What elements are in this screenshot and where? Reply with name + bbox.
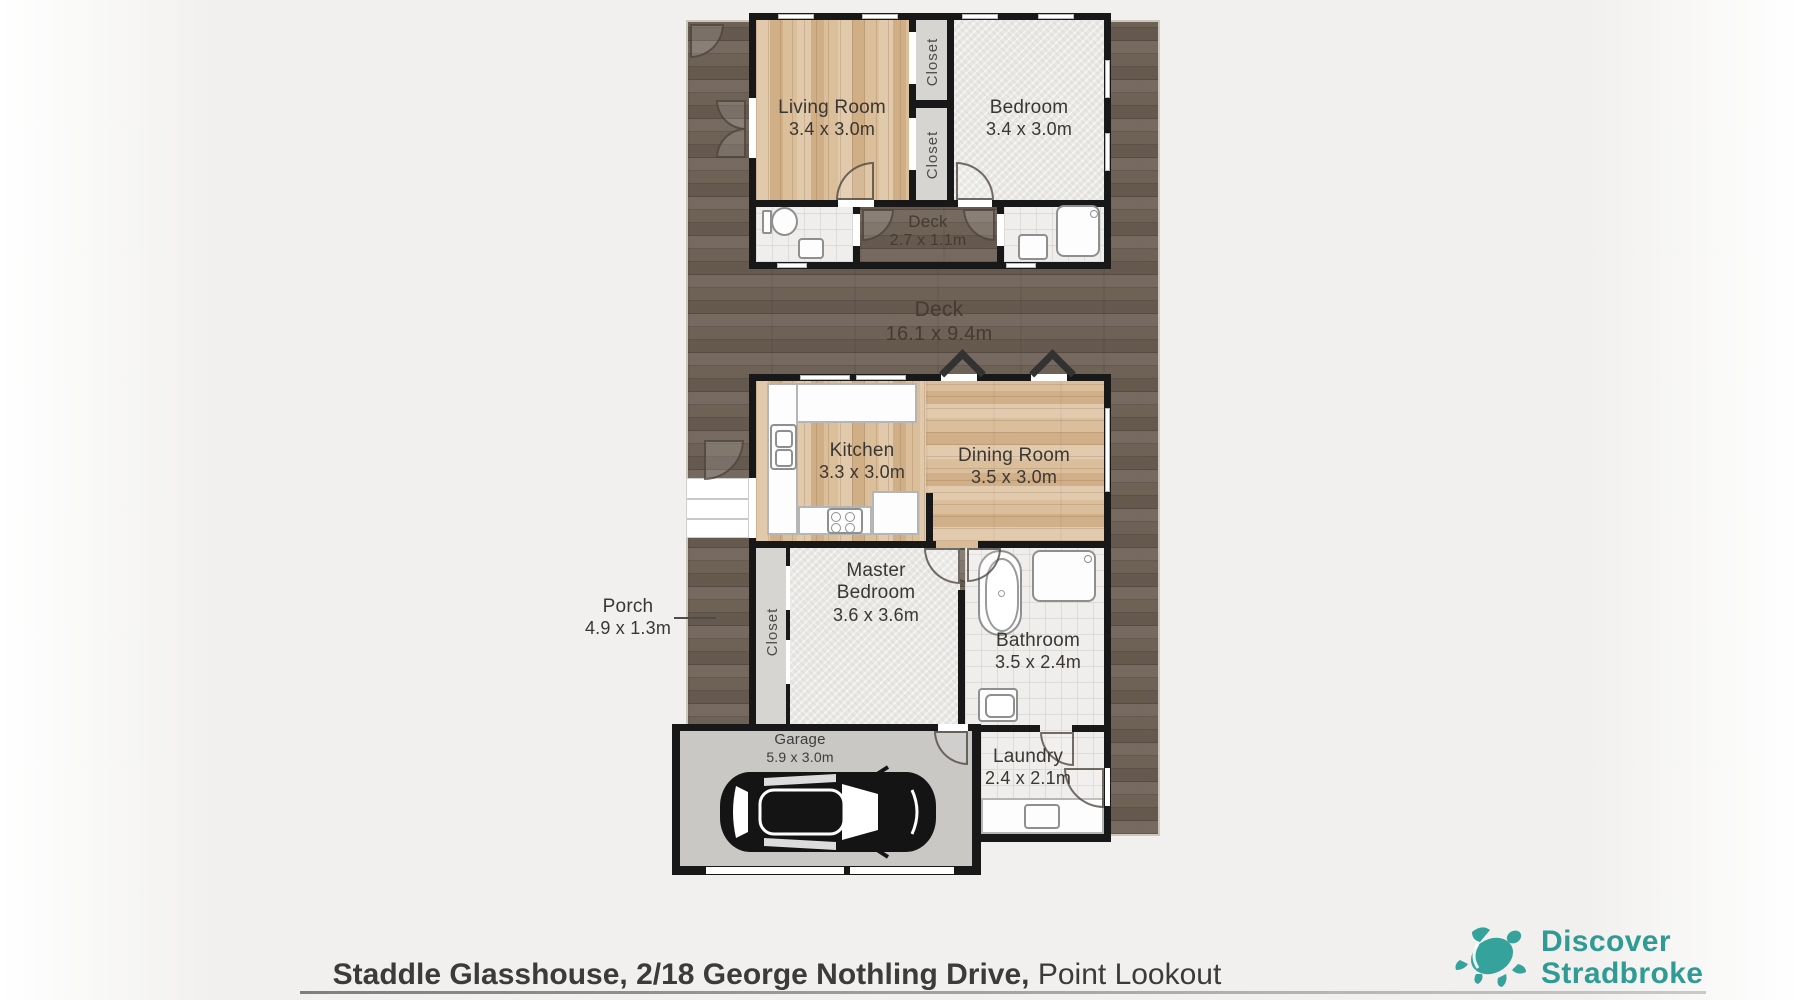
shower-drain: [1090, 210, 1098, 218]
master-dims: 3.6 x 3.6m: [833, 605, 919, 626]
window: [1038, 14, 1074, 19]
deck-small-name: Deck: [890, 212, 967, 232]
garage-label: Garage 5.9 x 3.0m: [766, 731, 833, 765]
closet-door-gap: [786, 566, 790, 610]
toilet-room-sink: [798, 238, 824, 259]
deck-main-name: Deck: [886, 298, 993, 323]
window: [777, 263, 807, 268]
living-room-name: Living Room: [778, 97, 886, 119]
deck-small-dims: 2.7 x 1.1m: [890, 232, 967, 251]
address-caption: Staddle Glasshouse, 2/18 George Nothling…: [327, 958, 1227, 992]
porch-label: Porch 4.9 x 1.3m: [585, 596, 671, 640]
wall: [756, 200, 1104, 207]
wall: [749, 548, 756, 731]
kitchen-name: Kitchen: [819, 440, 905, 462]
burner: [831, 512, 841, 522]
wall: [672, 724, 680, 875]
kitchen-sink-basin: [775, 449, 793, 467]
dining-name: Dining Room: [958, 445, 1070, 467]
bedroom-name: Bedroom: [986, 97, 1072, 119]
garage-door-gap: [938, 724, 968, 731]
wall: [958, 590, 965, 724]
laundry-dims: 2.4 x 2.1m: [985, 768, 1071, 789]
porch-leader-line: [674, 617, 716, 619]
laundry-name: Laundry: [985, 746, 1071, 768]
dining-dims: 3.5 x 3.0m: [958, 467, 1070, 488]
burner: [845, 523, 855, 533]
garage-dims: 5.9 x 3.0m: [766, 749, 833, 766]
wall: [672, 724, 981, 731]
closet-bottom-label: Closet: [924, 131, 941, 180]
window: [862, 14, 898, 19]
wall: [909, 100, 954, 108]
kitchen-island: [872, 491, 919, 535]
bathtub-drain: [998, 590, 1005, 597]
deck-small-label: Deck 2.7 x 1.1m: [890, 212, 967, 251]
porch-door-gap: [749, 478, 756, 538]
turtle-logo-icon: [1452, 920, 1532, 988]
master-name-1: Master: [833, 560, 919, 582]
laundry-sink: [1024, 804, 1060, 829]
closet-door-gap: [909, 32, 916, 84]
footer-divider: [300, 991, 1706, 994]
logo-line1: Discover: [1541, 926, 1703, 958]
wall: [1072, 725, 1104, 732]
window: [1105, 408, 1110, 492]
address-main: Staddle Glasshouse, 2/18 George Nothling…: [333, 958, 1030, 991]
toilet-bowl: [771, 207, 798, 236]
bathroom-name: Bathroom: [995, 630, 1081, 652]
car-icon: [716, 764, 940, 860]
bedroom-label: Bedroom 3.4 x 3.0m: [986, 97, 1072, 141]
living-room-dims: 3.4 x 3.0m: [778, 119, 886, 140]
porch-name: Porch: [585, 596, 671, 618]
window: [778, 14, 814, 19]
wall: [749, 541, 1111, 548]
window: [800, 375, 850, 380]
bedroom-dims: 3.4 x 3.0m: [986, 119, 1072, 140]
window: [962, 14, 998, 19]
garage-door-panel: [706, 867, 844, 874]
burner: [845, 512, 855, 522]
porch-dims: 4.9 x 1.3m: [585, 618, 671, 639]
porch-steps: [686, 478, 749, 538]
deck-main-dims: 16.1 x 9.4m: [886, 323, 993, 347]
kitchen-sink-basin: [775, 430, 793, 448]
bathroom-label: Bathroom 3.5 x 2.4m: [995, 630, 1081, 674]
door-gap: [958, 200, 992, 207]
kitchen-dims: 3.3 x 3.0m: [819, 462, 905, 483]
garage-door-panel: [850, 867, 954, 874]
kitchen-label: Kitchen 3.3 x 3.0m: [819, 440, 905, 484]
step-line: [687, 518, 748, 520]
closet-door-gap: [909, 118, 916, 170]
wall: [926, 493, 933, 541]
logo-text: Discover Stradbroke: [1541, 926, 1703, 990]
step-line: [687, 498, 748, 500]
master-name-2: Bedroom: [833, 582, 919, 604]
hall-door-gap: [936, 541, 978, 548]
bathroom-sink-basin: [985, 694, 1015, 718]
window: [856, 375, 906, 380]
door-gap: [997, 214, 1004, 246]
deck-main-label: Deck 16.1 x 9.4m: [886, 298, 993, 346]
window: [1105, 60, 1110, 98]
address-suburb: Point Lookout: [1030, 958, 1222, 991]
window: [1105, 133, 1110, 171]
living-room-label: Living Room 3.4 x 3.0m: [778, 97, 886, 141]
bathroom-top-sink: [1018, 234, 1048, 260]
door-gap: [853, 214, 860, 246]
closet-master-label: Closet: [764, 608, 781, 657]
shower-drain: [1084, 555, 1092, 563]
door-gap: [749, 98, 756, 158]
laundry-door-gap: [1105, 768, 1110, 806]
garage-name: Garage: [766, 731, 833, 749]
wall: [947, 20, 954, 200]
wall: [974, 725, 1040, 732]
burner: [831, 523, 841, 533]
laundry-label: Laundry 2.4 x 2.1m: [985, 746, 1071, 790]
closet-door-gap: [786, 640, 790, 684]
dining-label: Dining Room 3.5 x 3.0m: [958, 445, 1070, 489]
door-gap: [838, 200, 874, 207]
wall: [972, 724, 981, 875]
window: [1006, 263, 1036, 268]
floorplan-page: Deck 16.1 x 9.4m Livi: [0, 0, 1800, 1000]
closet-top-label: Closet: [924, 38, 941, 87]
bathroom-dims: 3.5 x 2.4m: [995, 652, 1081, 673]
logo-line2: Stradbroke: [1541, 958, 1703, 990]
master-label: Master Bedroom 3.6 x 3.6m: [833, 560, 919, 626]
